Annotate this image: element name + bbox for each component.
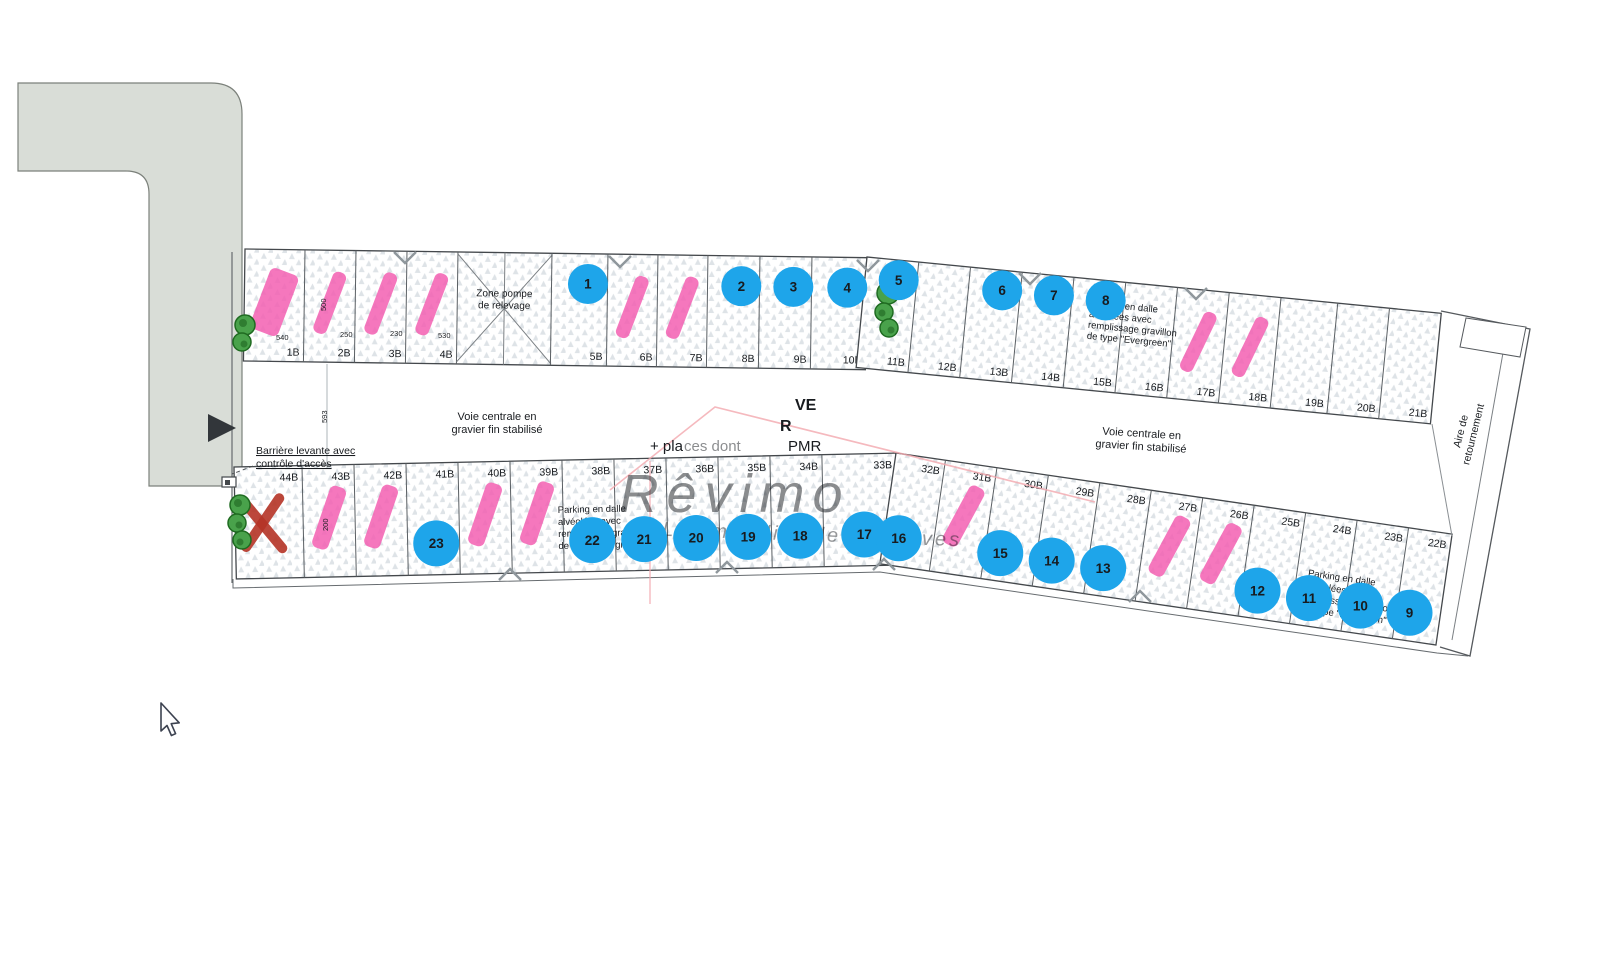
barrier-label-line2: contrôle d'accès — [256, 458, 332, 470]
dimension-540: 540 — [276, 333, 289, 342]
lot-label-8B: 8B — [742, 353, 755, 365]
pump-zone-label: Zone pompe de relevage — [476, 288, 533, 312]
lot-marker-number: 3 — [790, 280, 798, 295]
parking-band-top-left: 1B2B3B4B5B6B7B8B9B10B — [243, 249, 867, 370]
lot-marker-number: 14 — [1044, 553, 1060, 568]
central-lane-label-right: Voie centrale en gravier fin stabilisé — [1095, 425, 1187, 456]
lot-label-43B: 43B — [331, 471, 350, 483]
pmr-note-fragment-ve: VE — [795, 397, 817, 414]
lot-label-39B: 39B — [539, 466, 558, 478]
dimension-230: 230 — [390, 329, 403, 338]
watermark-brand: Rêvimo — [619, 464, 850, 524]
central-lane-label-left: Voie centrale en gravier fin stabilisé — [451, 411, 542, 436]
lot-label-2B: 2B — [338, 347, 351, 359]
pmr-note-fragment-prefix: + pla — [650, 438, 684, 455]
lot-label-9B: 9B — [794, 354, 807, 366]
lot-marker-number: 22 — [585, 533, 600, 548]
lot-marker-number: 13 — [1096, 561, 1112, 576]
lot-marker-number: 19 — [741, 530, 756, 545]
pump-zone-label-line2: de relevage — [478, 300, 531, 312]
surface-note-line: Parking en dalle — [558, 504, 626, 516]
dimension-593: 593 — [320, 410, 329, 423]
lot-marker-number: 16 — [891, 531, 907, 546]
central-lane-label-line2: gravier fin stabilisé — [451, 424, 542, 436]
lot-label-13B: 13B — [989, 366, 1009, 380]
site-plan-page: 1B2B3B4B5B6B7B8B9B10B 11B12B13B14B15B16B… — [0, 0, 1600, 980]
dimension-530: 530 — [438, 331, 451, 340]
barrier-label-line1: Barrière levante avec — [256, 445, 355, 457]
lot-label-15B: 15B — [1093, 376, 1113, 390]
lot-marker-number: 17 — [857, 527, 872, 542]
lot-marker-number: 8 — [1102, 293, 1110, 308]
lot-label-16B: 16B — [1144, 381, 1164, 395]
lot-label-44B: 44B — [279, 472, 298, 484]
lot-label-40B: 40B — [487, 467, 506, 479]
lot-marker-number: 20 — [689, 531, 704, 546]
lot-label-4B: 4B — [440, 349, 453, 361]
dimension-500: 500 — [319, 298, 328, 311]
lot-label-20B: 20B — [1356, 402, 1376, 416]
dimension-200: 200 — [321, 518, 330, 531]
lot-label-3B: 3B — [389, 348, 402, 360]
barrier-gate-post — [225, 480, 230, 485]
lot-marker-number: 10 — [1353, 598, 1368, 613]
lot-marker-number: 12 — [1250, 583, 1265, 598]
lot-label-5B: 5B — [590, 351, 603, 363]
turning-area-outline — [1440, 311, 1530, 656]
turning-area-label: Aire de retournement — [1448, 399, 1487, 466]
pmr-note-fragment-r: R — [780, 418, 792, 435]
lot-label-19B: 19B — [1305, 396, 1325, 410]
turning-area-plot — [1460, 318, 1526, 357]
lot-label-33B: 33B — [873, 459, 892, 471]
pmr-note-fragment-pmr: PMR — [788, 438, 822, 455]
lot-label-17B: 17B — [1196, 386, 1216, 400]
site-plan-drawing: 1B2B3B4B5B6B7B8B9B10B 11B12B13B14B15B16B… — [0, 0, 1600, 980]
mouse-cursor-icon — [161, 703, 179, 736]
lot-label-18B: 18B — [1248, 391, 1268, 405]
lot-label-12B: 12B — [937, 360, 957, 374]
lot-marker-number: 1 — [584, 277, 592, 292]
lot-marker-number: 11 — [1302, 591, 1317, 606]
lot-label-1B: 1B — [287, 347, 300, 359]
lot-marker-number: 23 — [429, 536, 445, 551]
pump-zone-label-line1: Zone pompe — [476, 288, 533, 300]
lot-marker-number: 7 — [1050, 288, 1058, 303]
lot-marker-number: 5 — [895, 273, 903, 288]
driveway-end-line — [1432, 424, 1452, 536]
lot-marker-number: 6 — [998, 283, 1006, 298]
lot-marker-number: 2 — [738, 279, 746, 294]
lot-marker-number: 18 — [793, 528, 809, 543]
lot-marker-number: 21 — [637, 532, 653, 547]
lot-marker-number: 9 — [1406, 606, 1414, 621]
lot-label-21B: 21B — [1408, 407, 1428, 421]
dimension-250: 250 — [340, 330, 353, 339]
lot-label-6B: 6B — [640, 352, 653, 364]
lot-label-7B: 7B — [690, 352, 703, 364]
pmr-note-fragment-mid: ces dont — [684, 438, 742, 455]
lot-marker-number: 4 — [844, 280, 852, 295]
lot-label-41B: 41B — [435, 468, 454, 480]
turning-area-inner-line — [1452, 336, 1506, 640]
lot-label-42B: 42B — [383, 469, 402, 481]
lot-label-14B: 14B — [1041, 371, 1061, 385]
pmr-note: VE R + pla ces dont PMR — [650, 397, 822, 455]
lot-marker-number: 15 — [993, 546, 1009, 561]
turning-area: Aire de retournement — [1432, 311, 1530, 656]
lot-label-11B: 11B — [886, 355, 905, 369]
lot-label-38B: 38B — [591, 465, 610, 477]
central-lane-label-line1: Voie centrale en — [458, 411, 537, 423]
